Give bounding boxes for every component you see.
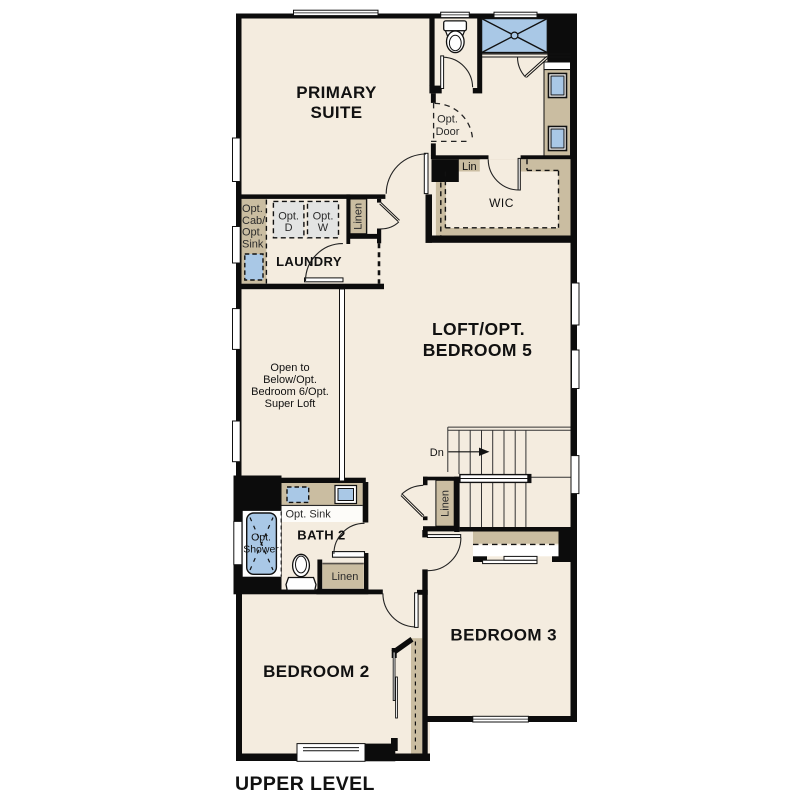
svg-text:Opt.: Opt.: [313, 210, 334, 222]
svg-text:Below/Opt.: Below/Opt.: [263, 374, 317, 386]
svg-text:BATH 2: BATH 2: [297, 528, 345, 543]
svg-text:Linen: Linen: [440, 490, 452, 517]
svg-text:LOFT/OPT.: LOFT/OPT.: [432, 319, 525, 339]
svg-text:BEDROOM 5: BEDROOM 5: [423, 340, 533, 360]
svg-text:BEDROOM 2: BEDROOM 2: [263, 662, 370, 681]
svg-text:W: W: [318, 222, 329, 234]
svg-text:Cab/: Cab/: [242, 215, 266, 227]
svg-text:Opt.: Opt.: [251, 532, 271, 544]
svg-text:Lin: Lin: [462, 161, 477, 173]
svg-text:Bedroom 6/Opt.: Bedroom 6/Opt.: [251, 386, 329, 398]
svg-text:Shower: Shower: [243, 543, 279, 555]
svg-text:D: D: [285, 222, 293, 234]
svg-text:Linen: Linen: [331, 571, 358, 583]
svg-text:Opt.: Opt.: [242, 203, 263, 215]
svg-text:UPPER LEVEL: UPPER LEVEL: [235, 773, 375, 795]
svg-text:Opt.: Opt.: [278, 210, 299, 222]
svg-text:WIC: WIC: [489, 196, 514, 210]
svg-text:SUITE: SUITE: [310, 103, 362, 122]
svg-text:LAUNDRY: LAUNDRY: [276, 254, 342, 269]
svg-text:Opt.: Opt.: [437, 113, 458, 125]
svg-text:BEDROOM 3: BEDROOM 3: [450, 625, 557, 644]
svg-text:Linen: Linen: [353, 203, 365, 230]
svg-text:Door: Door: [436, 126, 460, 138]
svg-text:Super Loft: Super Loft: [265, 398, 316, 410]
svg-text:Open to: Open to: [270, 362, 309, 374]
svg-text:Dn: Dn: [430, 447, 444, 459]
svg-text:PRIMARY: PRIMARY: [296, 83, 377, 102]
svg-text:Opt.: Opt.: [242, 227, 263, 239]
svg-text:Sink: Sink: [242, 239, 264, 251]
svg-text:Opt. Sink: Opt. Sink: [286, 509, 332, 521]
